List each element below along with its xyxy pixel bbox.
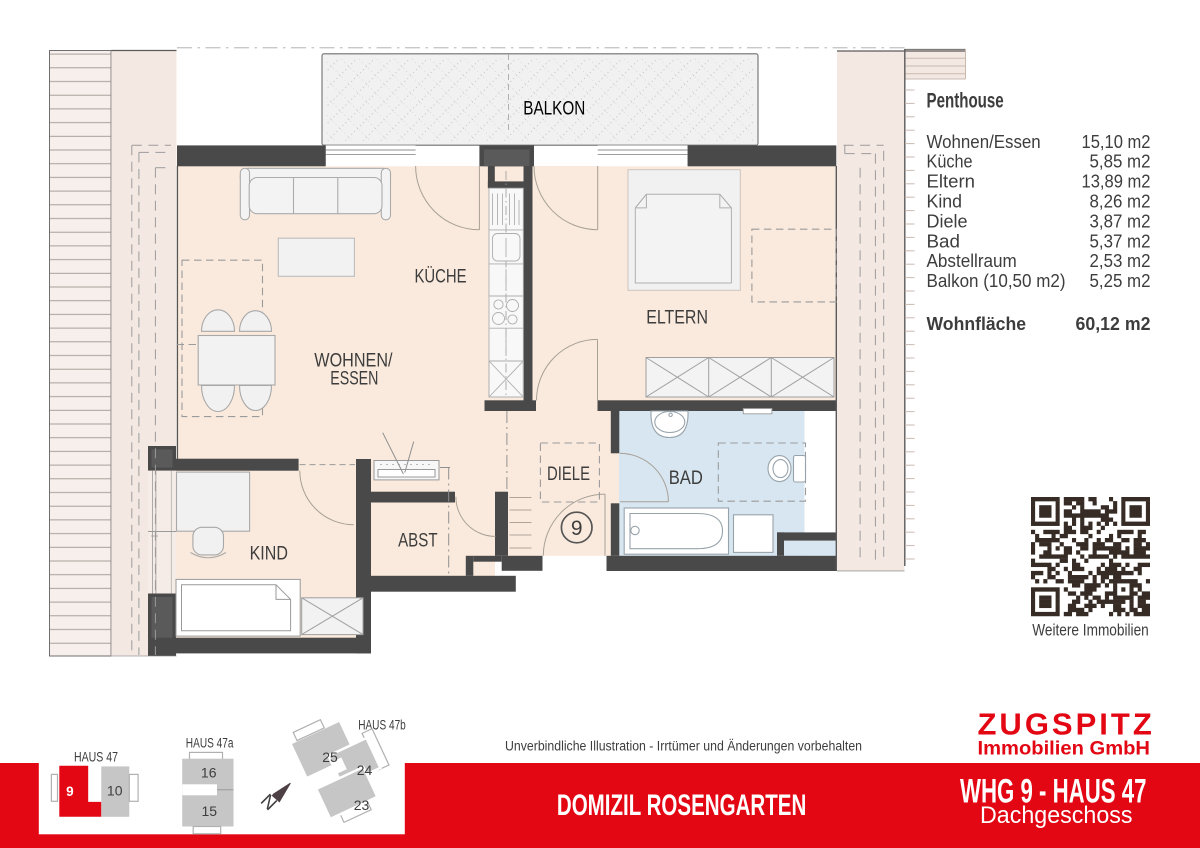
- svg-text:Weitere Immobilien: Weitere Immobilien: [1032, 622, 1149, 640]
- svg-text:2,53 m2: 2,53 m2: [1090, 251, 1151, 271]
- svg-text:Bad: Bad: [927, 231, 961, 251]
- svg-text:HAUS 47b: HAUS 47b: [358, 717, 406, 732]
- svg-text:HAUS 47: HAUS 47: [74, 750, 118, 765]
- svg-text:DOMIZIL ROSENGARTEN: DOMIZIL ROSENGARTEN: [557, 789, 806, 822]
- svg-text:60,12 m2: 60,12 m2: [1076, 314, 1151, 334]
- svg-text:Wohnen/Essen: Wohnen/Essen: [927, 132, 1041, 152]
- svg-text:ZUGSPITZ: ZUGSPITZ: [978, 707, 1155, 742]
- svg-text:5,85 m2: 5,85 m2: [1090, 152, 1151, 172]
- svg-text:Penthouse: Penthouse: [927, 90, 1004, 113]
- svg-text:15: 15: [202, 803, 218, 819]
- svg-text:KIND: KIND: [250, 543, 288, 565]
- svg-text:16: 16: [201, 765, 217, 781]
- svg-text:3,87 m2: 3,87 m2: [1090, 211, 1151, 231]
- svg-text:10: 10: [107, 783, 123, 799]
- svg-text:Kind: Kind: [927, 192, 963, 212]
- svg-text:23: 23: [354, 797, 370, 813]
- svg-text:Balkon (10,50 m2): Balkon (10,50 m2): [927, 271, 1066, 291]
- svg-text:BAD: BAD: [669, 467, 703, 489]
- svg-text:13,89 m2: 13,89 m2: [1082, 172, 1151, 192]
- svg-text:5,37 m2: 5,37 m2: [1090, 231, 1151, 251]
- svg-text:25: 25: [322, 749, 338, 765]
- svg-text:5,25 m2: 5,25 m2: [1090, 271, 1151, 291]
- svg-text:9: 9: [66, 784, 74, 799]
- svg-text:BALKON: BALKON: [523, 97, 585, 119]
- svg-text:DIELE: DIELE: [547, 463, 590, 485]
- svg-text:15,10 m2: 15,10 m2: [1082, 132, 1151, 152]
- svg-text:HAUS 47a: HAUS 47a: [186, 736, 234, 751]
- svg-text:Küche: Küche: [927, 152, 973, 172]
- svg-text:Eltern: Eltern: [927, 172, 976, 192]
- svg-text:Dachgeschoss: Dachgeschoss: [980, 802, 1133, 829]
- svg-text:ABST: ABST: [398, 530, 438, 552]
- svg-text:9: 9: [571, 517, 583, 540]
- svg-text:24: 24: [357, 762, 373, 778]
- svg-text:Wohnfläche: Wohnfläche: [927, 314, 1027, 334]
- svg-text:Diele: Diele: [927, 211, 968, 231]
- svg-text:ELTERN: ELTERN: [646, 306, 708, 328]
- svg-text:Unverbindliche Illustration -: Unverbindliche Illustration - Irrtümer u…: [505, 739, 862, 754]
- svg-text:8,26 m2: 8,26 m2: [1090, 192, 1151, 212]
- svg-text:Abstellraum: Abstellraum: [927, 251, 1017, 271]
- svg-text:ESSEN: ESSEN: [330, 368, 378, 390]
- svg-text:Immobilien GmbH: Immobilien GmbH: [978, 738, 1151, 760]
- svg-text:KÜCHE: KÜCHE: [415, 265, 467, 287]
